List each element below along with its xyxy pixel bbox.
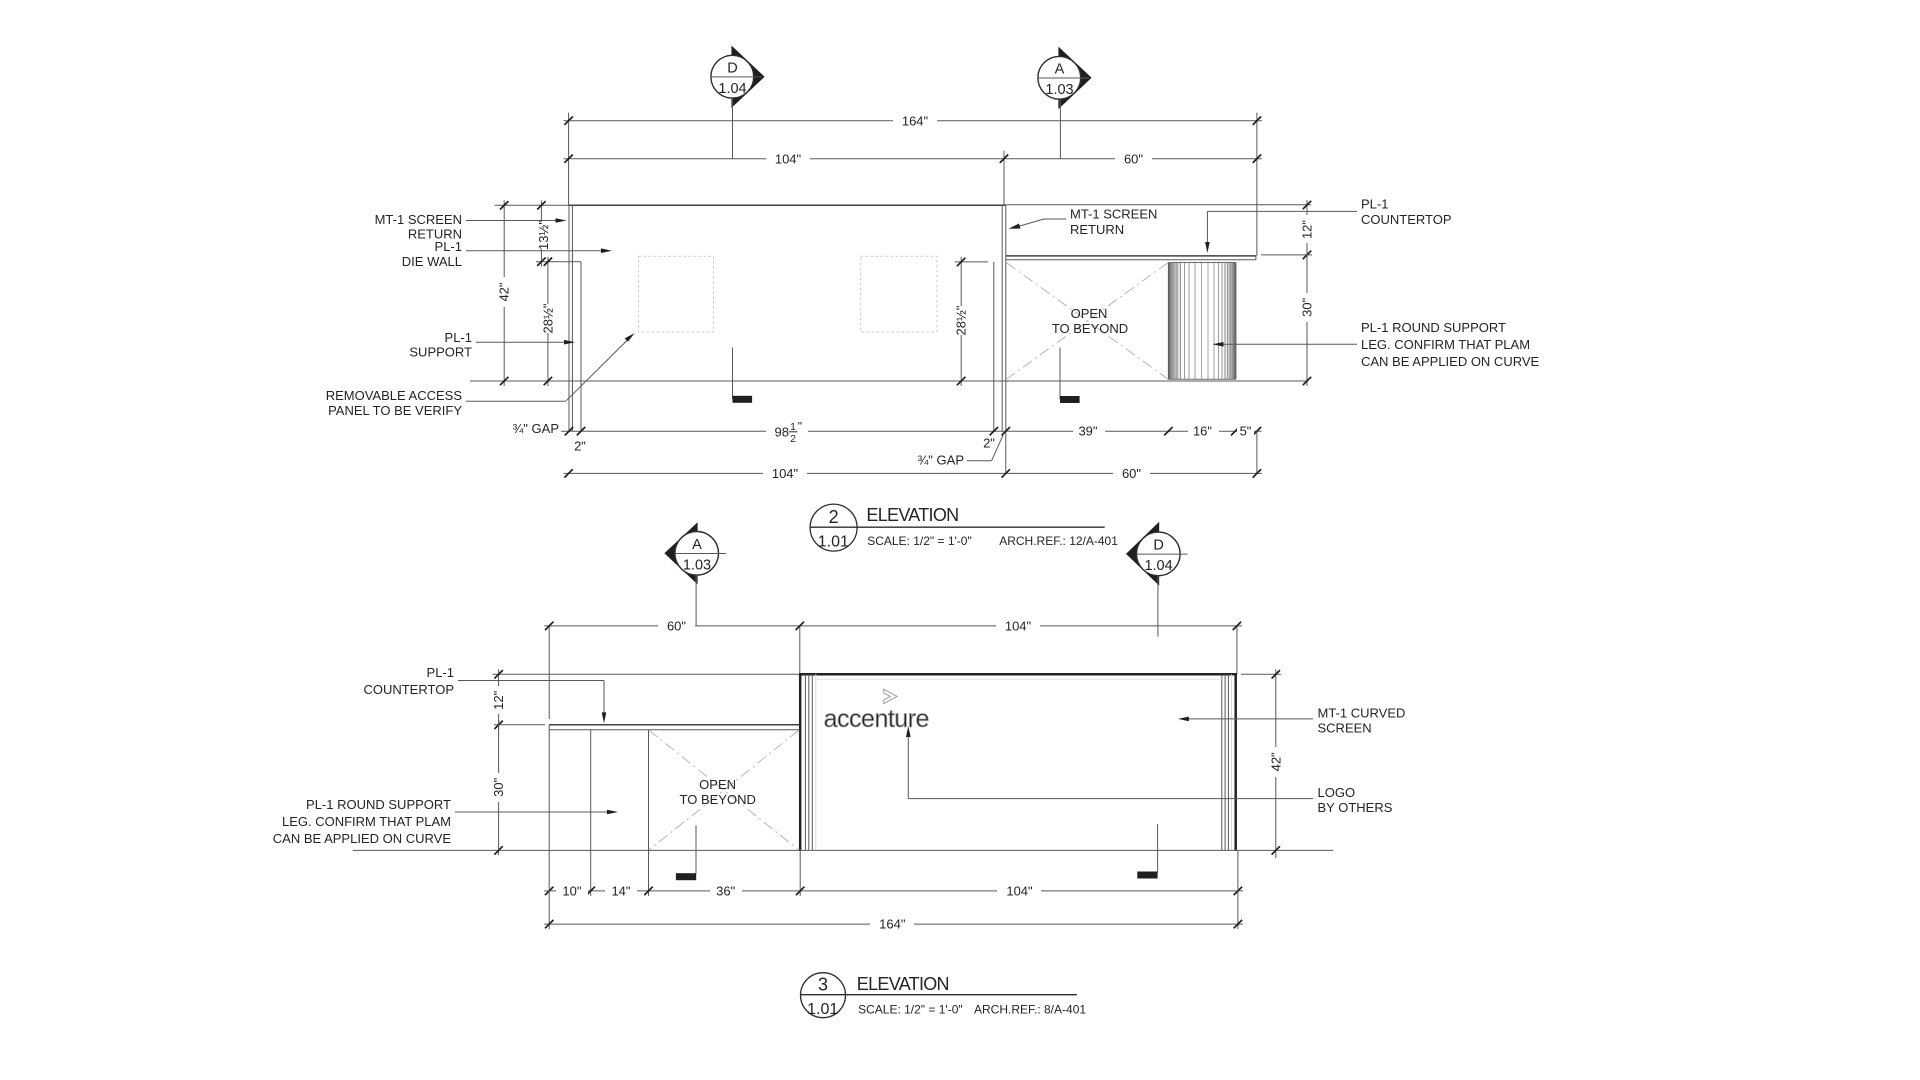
svg-text:12": 12": [491, 690, 506, 709]
svg-text:TO BEYOND: TO BEYOND: [680, 792, 756, 807]
svg-text:A: A: [1055, 62, 1065, 78]
svg-text:SUPPORT: SUPPORT: [409, 345, 472, 360]
svg-text:1.01: 1.01: [807, 1001, 838, 1018]
svg-text:LOGO: LOGO: [1318, 785, 1356, 800]
svg-text:2": 2": [983, 435, 995, 450]
svg-text:¾" GAP: ¾" GAP: [512, 421, 559, 436]
svg-text:28½": 28½": [540, 303, 555, 333]
svg-text:ARCH.REF.: 8/A-401: ARCH.REF.: 8/A-401: [974, 1003, 1086, 1017]
svg-text:CAN BE APPLIED ON CURVE: CAN BE APPLIED ON CURVE: [1361, 354, 1540, 369]
svg-text:¾" GAP: ¾" GAP: [917, 453, 964, 468]
svg-text:PL-1: PL-1: [427, 665, 454, 680]
svg-text:ELEVATION: ELEVATION: [866, 505, 958, 525]
svg-text:104": 104": [775, 151, 802, 166]
svg-text:30": 30": [491, 777, 506, 796]
svg-text:SCREEN: SCREEN: [1318, 720, 1372, 735]
svg-text:2: 2: [829, 507, 839, 527]
svg-text:1.03: 1.03: [683, 558, 711, 574]
svg-text:D: D: [727, 61, 737, 77]
svg-text:28½": 28½": [954, 305, 969, 335]
svg-text:PL-1 ROUND SUPPORT: PL-1 ROUND SUPPORT: [306, 797, 451, 812]
svg-text:39": 39": [1078, 424, 1097, 439]
svg-text:CAN BE APPLIED ON CURVE: CAN BE APPLIED ON CURVE: [273, 831, 452, 846]
svg-text:60": 60": [1124, 151, 1143, 166]
svg-text:10": 10": [562, 884, 581, 899]
svg-text:TO BEYOND: TO BEYOND: [1052, 321, 1128, 336]
svg-text:COUNTERTOP: COUNTERTOP: [1361, 212, 1452, 227]
svg-text:": ": [798, 420, 802, 434]
svg-text:REMOVABLE ACCESS: REMOVABLE ACCESS: [326, 388, 463, 403]
svg-text:ELEVATION: ELEVATION: [857, 974, 949, 994]
svg-text:LEG. CONFIRM THAT PLAM: LEG. CONFIRM THAT PLAM: [1361, 337, 1530, 352]
svg-text:1.03: 1.03: [1045, 82, 1073, 98]
svg-text:PL-1: PL-1: [445, 330, 472, 345]
svg-text:60": 60": [1122, 466, 1141, 481]
svg-text:A: A: [692, 537, 702, 553]
svg-text:2: 2: [790, 433, 796, 445]
svg-text:12": 12": [1300, 220, 1315, 239]
svg-text:MT-1 SCREEN: MT-1 SCREEN: [1070, 207, 1157, 222]
svg-text:PL-1: PL-1: [435, 239, 462, 254]
svg-text:164": 164": [902, 113, 929, 128]
svg-text:42": 42": [1268, 752, 1283, 771]
svg-text:RETURN: RETURN: [1070, 222, 1124, 237]
svg-text:ARCH.REF.: 12/A-401: ARCH.REF.: 12/A-401: [999, 534, 1118, 548]
svg-text:SCALE: 1/2" = 1'-0": SCALE: 1/2" = 1'-0": [867, 534, 972, 548]
svg-text:PL-1: PL-1: [1361, 196, 1388, 211]
svg-text:1.04: 1.04: [718, 81, 746, 97]
svg-text:D: D: [1153, 538, 1163, 554]
svg-text:MT-1 CURVED: MT-1 CURVED: [1318, 705, 1406, 720]
svg-text:60": 60": [667, 619, 686, 634]
svg-text:MT-1 SCREEN: MT-1 SCREEN: [375, 212, 462, 227]
svg-text:PL-1 ROUND SUPPORT: PL-1 ROUND SUPPORT: [1361, 320, 1506, 335]
svg-text:DIE WALL: DIE WALL: [402, 254, 462, 269]
svg-text:42": 42": [497, 282, 512, 301]
svg-text:accenture: accenture: [824, 705, 929, 733]
svg-text:104": 104": [1006, 884, 1033, 899]
svg-text:3: 3: [818, 974, 828, 994]
svg-text:16": 16": [1193, 424, 1212, 439]
svg-text:5": 5": [1240, 424, 1252, 439]
svg-text:1.04: 1.04: [1144, 558, 1172, 574]
svg-text:1.01: 1.01: [818, 534, 849, 551]
svg-text:14": 14": [611, 884, 630, 899]
svg-text:LEG. CONFIRM THAT PLAM: LEG. CONFIRM THAT PLAM: [282, 814, 451, 829]
svg-text:COUNTERTOP: COUNTERTOP: [363, 682, 454, 697]
svg-text:30": 30": [1300, 297, 1315, 316]
svg-text:PANEL TO BE VERIFY: PANEL TO BE VERIFY: [328, 403, 462, 418]
svg-text:164": 164": [879, 917, 906, 932]
svg-text:OPEN: OPEN: [1071, 306, 1108, 321]
svg-text:SCALE: 1/2" = 1'-0": SCALE: 1/2" = 1'-0": [858, 1003, 963, 1017]
svg-text:1: 1: [790, 421, 796, 433]
svg-text:104": 104": [1005, 619, 1032, 634]
svg-text:2": 2": [574, 439, 586, 454]
svg-text:36": 36": [716, 884, 735, 899]
svg-text:13½": 13½": [536, 220, 551, 250]
svg-text:OPEN: OPEN: [699, 777, 736, 792]
svg-text:BY OTHERS: BY OTHERS: [1318, 800, 1393, 815]
svg-text:104": 104": [772, 466, 799, 481]
svg-text:98: 98: [775, 425, 789, 440]
